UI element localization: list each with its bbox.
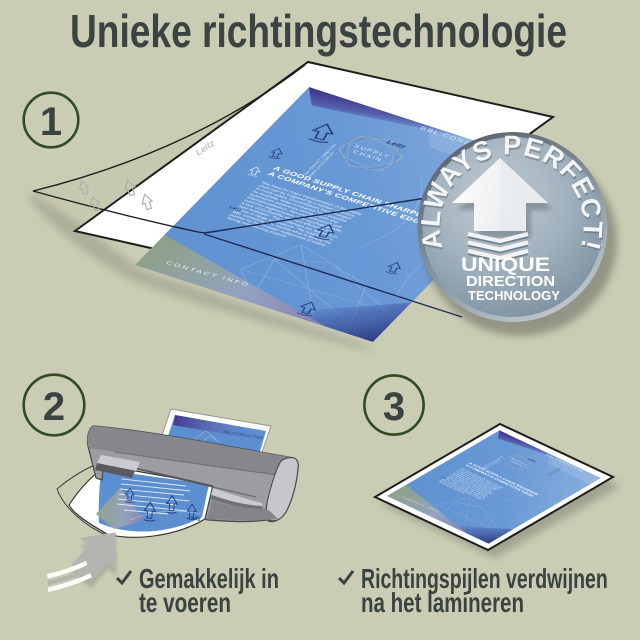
svg-text:3: 3	[383, 385, 405, 429]
svg-text:TECHNOLOGY: TECHNOLOGY	[468, 289, 561, 303]
svg-text:2: 2	[43, 385, 65, 429]
svg-text:1: 1	[40, 100, 62, 144]
svg-text:Unieke richtingstechnologie: Unieke richtingstechnologie	[70, 5, 567, 57]
svg-text:na het lamineren: na het lamineren	[361, 588, 524, 619]
svg-text:DIRECTION: DIRECTION	[466, 273, 555, 290]
svg-text:te voeren: te voeren	[139, 588, 231, 619]
